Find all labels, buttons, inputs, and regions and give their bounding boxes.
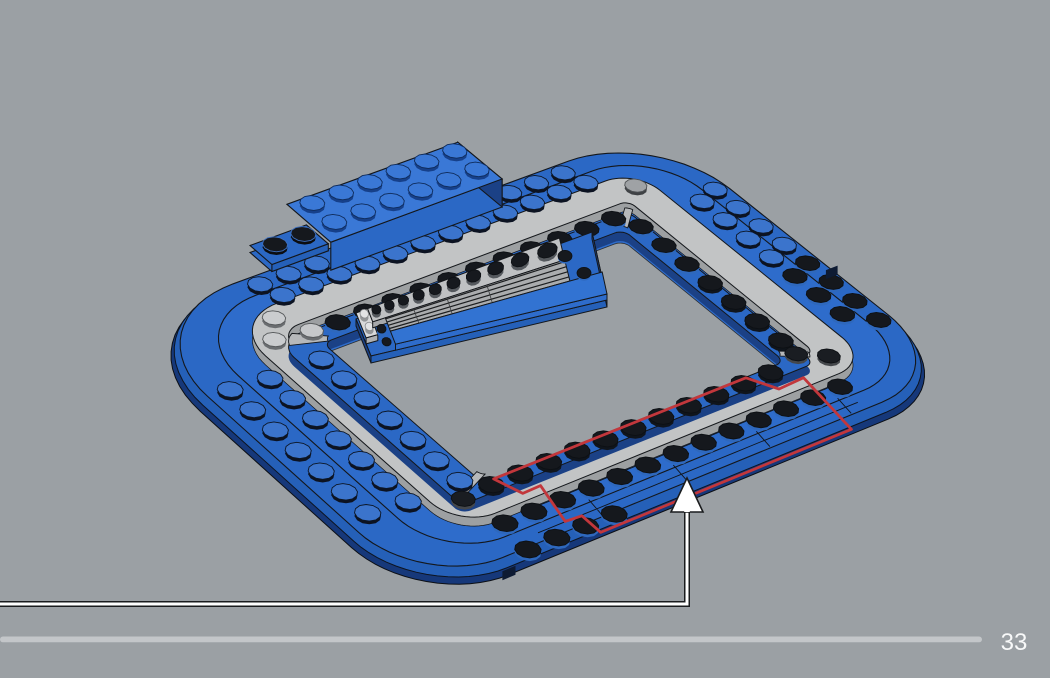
svg-text:33: 33	[1001, 629, 1028, 656]
